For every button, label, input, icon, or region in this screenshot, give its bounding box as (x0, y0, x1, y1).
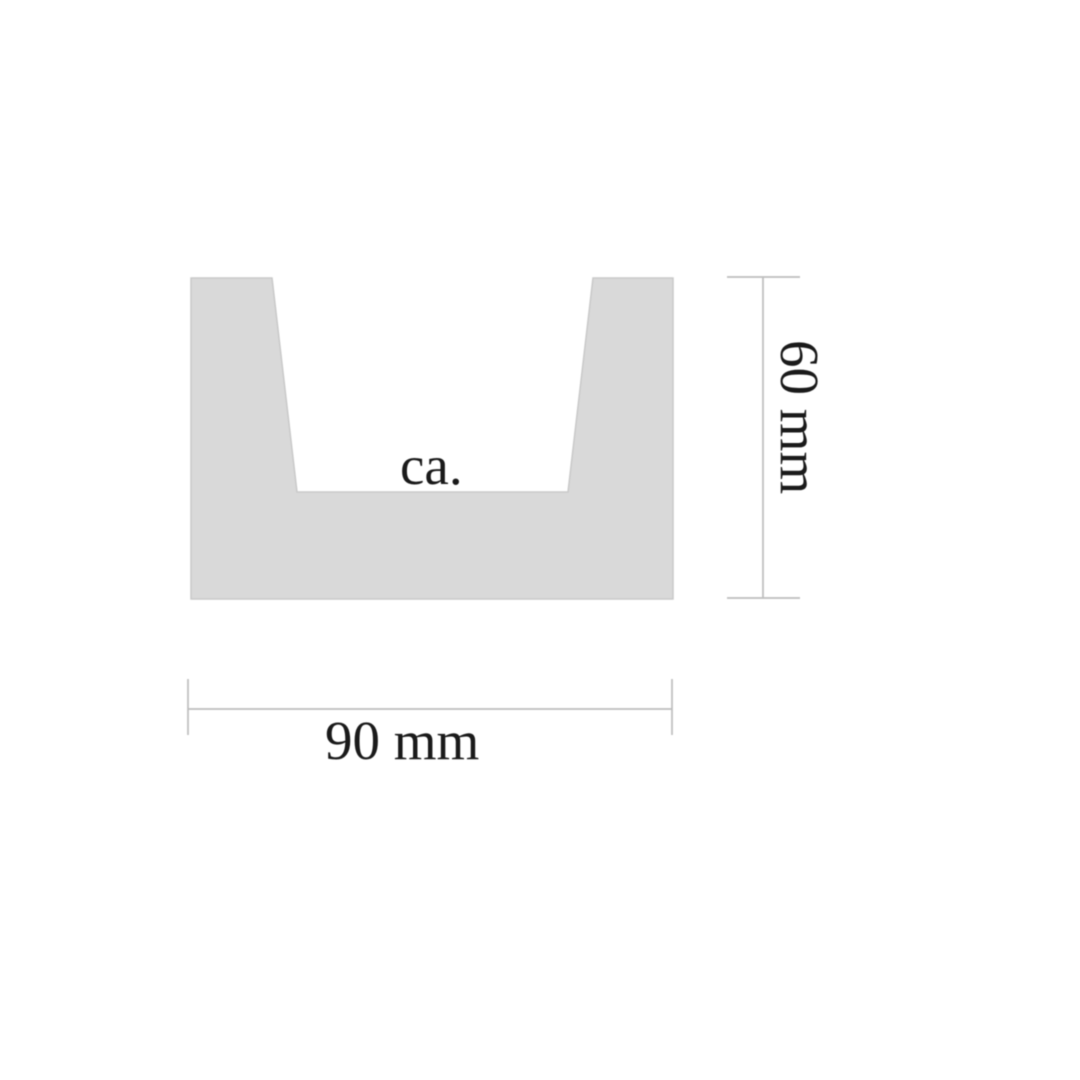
svg-text:90 mm: 90 mm (325, 710, 479, 771)
svg-text:60 mm: 60 mm (769, 340, 830, 494)
svg-text:ca.: ca. (400, 435, 463, 496)
